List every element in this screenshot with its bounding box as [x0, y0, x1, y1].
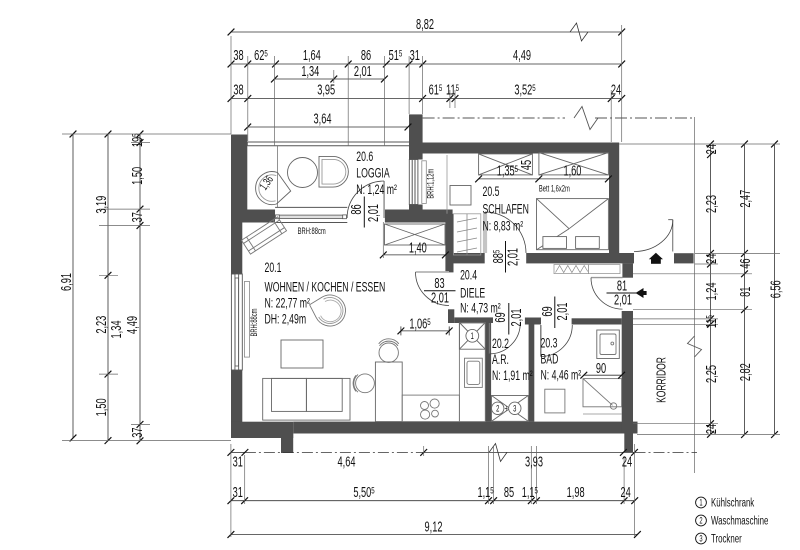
- svg-text:3,64: 3,64: [314, 110, 332, 127]
- svg-text:1,24: 1,24: [703, 282, 720, 300]
- svg-text:KORRIDOR: KORRIDOR: [655, 357, 669, 403]
- svg-text:Trockner: Trockner: [711, 533, 742, 546]
- svg-text:2,23: 2,23: [703, 195, 720, 213]
- svg-text:3,93: 3,93: [525, 453, 543, 470]
- svg-text:2,25: 2,25: [703, 365, 720, 383]
- svg-text:1: 1: [471, 331, 474, 342]
- svg-text:20.2: 20.2: [492, 337, 509, 351]
- svg-text:SCHLAFEN: SCHLAFEN: [483, 203, 529, 217]
- svg-text:BRH:88cm: BRH:88cm: [298, 226, 326, 237]
- svg-text:WOHNEN / KOCHEN / ESSEN: WOHNEN / KOCHEN / ESSEN: [265, 281, 386, 295]
- svg-text:86: 86: [361, 47, 371, 64]
- svg-text:1,64: 1,64: [303, 47, 321, 64]
- svg-text:1,50: 1,50: [129, 167, 146, 185]
- svg-text:24: 24: [703, 253, 720, 263]
- svg-text:2,01: 2,01: [365, 204, 382, 222]
- svg-text:20.4: 20.4: [460, 269, 477, 283]
- svg-text:2,01: 2,01: [354, 63, 372, 80]
- svg-text:Bett 1,6x2m: Bett 1,6x2m: [539, 183, 570, 194]
- svg-text:9,12: 9,12: [425, 518, 443, 535]
- svg-text:2,01: 2,01: [614, 291, 632, 308]
- svg-text:2,47: 2,47: [737, 189, 754, 207]
- svg-text:90: 90: [596, 360, 606, 377]
- svg-text:2,01: 2,01: [554, 302, 571, 320]
- svg-text:3: 3: [513, 403, 516, 414]
- svg-text:24: 24: [611, 81, 621, 98]
- svg-text:N: 4,46 m²: N: 4,46 m²: [541, 369, 582, 383]
- svg-text:6,91: 6,91: [58, 273, 75, 291]
- svg-text:31: 31: [410, 47, 420, 64]
- svg-text:4,49: 4,49: [513, 47, 531, 64]
- svg-text:2: 2: [699, 515, 702, 526]
- svg-text:1,50: 1,50: [93, 398, 110, 416]
- svg-text:BRH:1,12m: BRH:1,12m: [425, 169, 436, 199]
- svg-text:Waschmaschine: Waschmaschine: [711, 515, 769, 528]
- svg-text:45: 45: [518, 160, 535, 170]
- svg-text:1,34: 1,34: [108, 320, 125, 338]
- svg-text:2,01: 2,01: [508, 308, 525, 326]
- svg-text:3,95: 3,95: [317, 81, 335, 98]
- svg-text:3,19: 3,19: [93, 195, 110, 213]
- svg-text:BAD: BAD: [541, 353, 559, 367]
- svg-text:DH: 2,49m: DH: 2,49m: [265, 313, 307, 327]
- svg-text:N: 22,77 m²: N: 22,77 m²: [265, 297, 311, 311]
- svg-text:N: 8,83 m²: N: 8,83 m²: [483, 220, 524, 234]
- svg-text:8,82: 8,82: [416, 16, 434, 33]
- svg-text:2,01: 2,01: [431, 289, 449, 306]
- svg-text:20.5: 20.5: [483, 185, 500, 199]
- svg-text:24: 24: [622, 453, 632, 470]
- svg-text:38: 38: [233, 81, 243, 98]
- svg-text:2,01: 2,01: [504, 248, 521, 266]
- svg-text:20.3: 20.3: [541, 337, 558, 351]
- svg-text:BRH:88cm: BRH:88cm: [249, 308, 260, 336]
- svg-text:3: 3: [699, 533, 702, 544]
- svg-text:24: 24: [703, 144, 720, 154]
- svg-text:20.6: 20.6: [356, 150, 373, 164]
- svg-text:DIELE: DIELE: [460, 287, 485, 301]
- svg-text:81: 81: [737, 286, 754, 296]
- svg-text:31: 31: [233, 453, 243, 470]
- svg-text:1,60: 1,60: [563, 162, 581, 179]
- svg-text:24: 24: [620, 484, 630, 501]
- svg-text:69: 69: [492, 312, 509, 322]
- svg-text:1,98: 1,98: [567, 484, 585, 501]
- svg-text:2: 2: [496, 403, 499, 414]
- svg-text:N: 1,24 m²: N: 1,24 m²: [356, 183, 397, 197]
- svg-text:1,34: 1,34: [301, 63, 319, 80]
- svg-text:38: 38: [233, 47, 243, 64]
- svg-text:86: 86: [348, 204, 365, 214]
- svg-text:6,56: 6,56: [767, 280, 784, 298]
- svg-text:31: 31: [233, 484, 243, 501]
- svg-text:Kühlschrank: Kühlschrank: [711, 497, 755, 510]
- svg-text:24: 24: [703, 424, 720, 434]
- svg-text:N: 1,91 m²: N: 1,91 m²: [492, 369, 533, 383]
- svg-text:37: 37: [129, 427, 146, 437]
- svg-text:1,40: 1,40: [409, 239, 427, 256]
- svg-text:37: 37: [129, 212, 146, 222]
- svg-text:1: 1: [699, 497, 702, 508]
- svg-text:4,49: 4,49: [124, 316, 141, 334]
- svg-text:85: 85: [504, 484, 514, 501]
- svg-text:46: 46: [737, 258, 754, 268]
- svg-text:4,64: 4,64: [338, 453, 356, 470]
- svg-text:+: +: [505, 403, 509, 414]
- svg-text:2,82: 2,82: [737, 363, 754, 381]
- svg-text:LOGGIA: LOGGIA: [356, 167, 390, 181]
- svg-text:A.R.: A.R.: [492, 353, 509, 367]
- svg-text:20.1: 20.1: [265, 261, 282, 275]
